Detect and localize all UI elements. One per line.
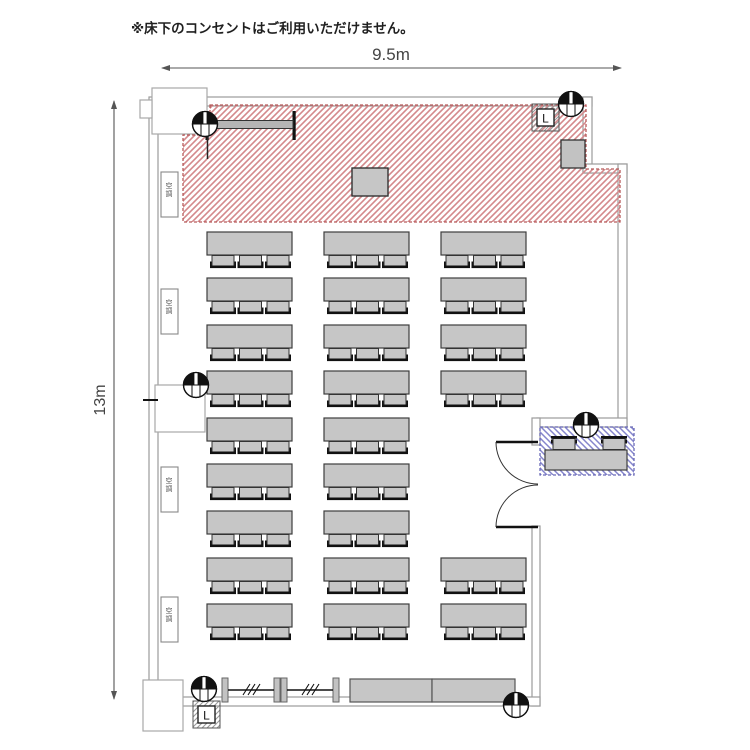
chair <box>472 349 498 362</box>
chair <box>238 535 264 548</box>
ac-unit-label: 空調 <box>163 607 173 623</box>
chair <box>265 349 291 362</box>
table-with-chairs <box>441 325 526 361</box>
table-with-chairs <box>207 464 292 500</box>
cabinet <box>350 679 432 702</box>
chair <box>355 535 381 548</box>
chair <box>238 349 264 362</box>
table-with-chairs <box>324 418 409 454</box>
chair <box>265 535 291 548</box>
chair <box>210 349 236 362</box>
table <box>324 418 409 441</box>
chair <box>444 582 470 595</box>
chair <box>265 256 291 269</box>
table <box>207 464 292 487</box>
chair <box>327 395 353 408</box>
pillar-icon <box>559 92 584 117</box>
chair <box>355 302 381 315</box>
chair <box>601 436 627 450</box>
table-with-chairs <box>324 371 409 407</box>
table <box>441 604 526 627</box>
ac-unit-label: 空調 <box>163 477 173 493</box>
chair <box>238 395 264 408</box>
pillar-icon <box>184 373 209 398</box>
table <box>324 558 409 581</box>
table <box>207 232 292 255</box>
table <box>207 325 292 348</box>
chair <box>551 436 577 450</box>
chair <box>499 395 525 408</box>
floor-plan: ※床下のコンセントはご利用いただけません。 9.5m 13m <box>0 0 750 750</box>
table <box>441 558 526 581</box>
dimension-height: 13m <box>92 100 117 700</box>
table <box>207 558 292 581</box>
chair <box>472 582 498 595</box>
chair <box>382 442 408 455</box>
chair <box>265 302 291 315</box>
table-with-chairs <box>207 558 292 594</box>
table-with-chairs <box>207 418 292 454</box>
table-with-chairs <box>207 278 292 314</box>
table-with-chairs <box>441 604 526 640</box>
table-with-chairs <box>207 511 292 547</box>
chair <box>472 395 498 408</box>
chair <box>355 442 381 455</box>
floor-plan-drawing: ※床下のコンセントはご利用いただけません。 9.5m 13m <box>0 0 750 750</box>
chair <box>472 256 498 269</box>
table <box>324 278 409 301</box>
reception-table <box>545 450 627 470</box>
chair <box>499 302 525 315</box>
floor-note: ※床下のコンセントはご利用いただけません。 <box>131 20 414 36</box>
chair <box>499 256 525 269</box>
table-with-chairs <box>207 232 292 268</box>
equipment-box <box>561 140 585 168</box>
chair <box>382 535 408 548</box>
chair <box>327 349 353 362</box>
chair <box>327 442 353 455</box>
door <box>496 442 538 527</box>
pillar-icon <box>192 677 217 702</box>
pillar-icon <box>193 112 218 137</box>
chair <box>265 395 291 408</box>
ac-unit-label: 空調 <box>163 182 173 198</box>
chair <box>472 628 498 641</box>
chair <box>327 302 353 315</box>
chair <box>444 349 470 362</box>
chair <box>355 582 381 595</box>
table <box>324 511 409 534</box>
chair <box>238 488 264 501</box>
chair <box>210 488 236 501</box>
panel-box-bottom-left: L <box>193 701 220 728</box>
table-with-chairs <box>207 325 292 361</box>
chair <box>210 256 236 269</box>
podium <box>352 168 388 196</box>
chair <box>444 395 470 408</box>
chair <box>210 302 236 315</box>
chair <box>238 302 264 315</box>
chair <box>210 628 236 641</box>
table-with-chairs <box>441 558 526 594</box>
chair <box>265 628 291 641</box>
table <box>207 418 292 441</box>
alcove-top-left-notch <box>140 100 152 118</box>
table-with-chairs <box>441 232 526 268</box>
table <box>207 278 292 301</box>
chair <box>382 628 408 641</box>
chair <box>444 256 470 269</box>
table <box>207 371 292 394</box>
table <box>207 604 292 627</box>
ac-unit-label: 空調 <box>163 299 173 315</box>
cabinet <box>432 679 515 702</box>
chair <box>265 488 291 501</box>
table <box>441 325 526 348</box>
table <box>441 371 526 394</box>
chair <box>238 628 264 641</box>
table-with-chairs <box>324 325 409 361</box>
table <box>324 604 409 627</box>
panel-label: L <box>542 112 549 126</box>
chair <box>499 349 525 362</box>
chair <box>382 488 408 501</box>
chair <box>499 628 525 641</box>
panel-box-top-right: L <box>532 104 559 131</box>
arrow-up-icon <box>111 100 117 109</box>
arrow-right-icon <box>613 65 622 71</box>
chair <box>327 535 353 548</box>
chair <box>355 628 381 641</box>
chair <box>238 256 264 269</box>
chair <box>238 582 264 595</box>
chair <box>327 582 353 595</box>
table-with-chairs <box>324 278 409 314</box>
arrow-left-icon <box>161 65 170 71</box>
chair <box>327 628 353 641</box>
pillar-icon <box>574 413 599 438</box>
table <box>441 278 526 301</box>
chair <box>472 302 498 315</box>
table-with-chairs <box>324 558 409 594</box>
chair <box>265 582 291 595</box>
table <box>324 325 409 348</box>
wall-lower-right-b <box>532 526 540 706</box>
chair <box>382 349 408 362</box>
chair <box>355 256 381 269</box>
table-with-chairs <box>441 278 526 314</box>
chair <box>444 302 470 315</box>
chair <box>355 488 381 501</box>
panel-label: L <box>203 709 210 723</box>
chair <box>210 395 236 408</box>
chair <box>210 535 236 548</box>
table <box>207 511 292 534</box>
table <box>324 232 409 255</box>
chair <box>238 442 264 455</box>
table <box>441 232 526 255</box>
chair <box>355 349 381 362</box>
alcove-bottom-left <box>143 680 183 731</box>
chair <box>355 395 381 408</box>
dimension-width: 9.5m <box>161 45 622 71</box>
chair <box>265 442 291 455</box>
chair <box>382 302 408 315</box>
table-with-chairs <box>324 604 409 640</box>
chair <box>210 442 236 455</box>
chair <box>327 488 353 501</box>
chair <box>444 628 470 641</box>
chair <box>382 582 408 595</box>
table <box>324 464 409 487</box>
seating-area <box>207 232 627 640</box>
table-with-chairs <box>207 371 292 407</box>
table-with-chairs <box>207 604 292 640</box>
table <box>324 371 409 394</box>
chair <box>382 395 408 408</box>
table-with-chairs <box>324 232 409 268</box>
chair <box>499 582 525 595</box>
pillar-icon <box>504 693 529 718</box>
table-with-chairs <box>441 371 526 407</box>
table-with-chairs <box>324 511 409 547</box>
dimension-width-label: 9.5m <box>372 45 410 64</box>
arrow-down-icon <box>111 691 117 700</box>
chair <box>210 582 236 595</box>
chair <box>382 256 408 269</box>
dimension-height-label: 13m <box>92 384 109 415</box>
chair <box>327 256 353 269</box>
table-with-chairs <box>324 464 409 500</box>
